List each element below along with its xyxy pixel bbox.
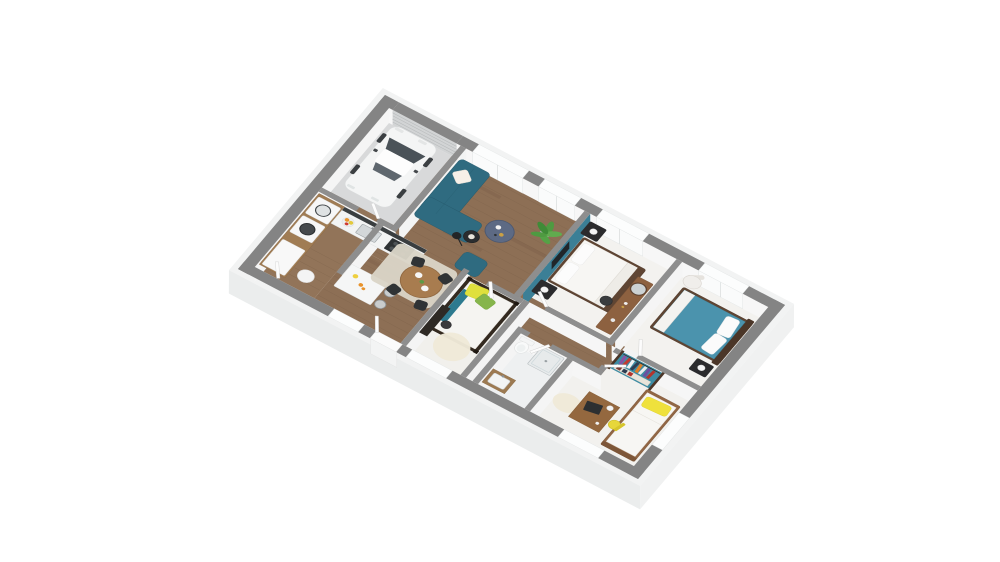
floor-plan-canvas	[0, 0, 1000, 562]
entrance-door-leaf	[375, 316, 378, 333]
bedroom3-door-leaf	[605, 365, 627, 368]
isometric-plan-group	[215, 88, 807, 509]
floor-plan-3d-rendering	[0, 0, 1000, 562]
bedroom2-door-leaf	[639, 339, 643, 356]
